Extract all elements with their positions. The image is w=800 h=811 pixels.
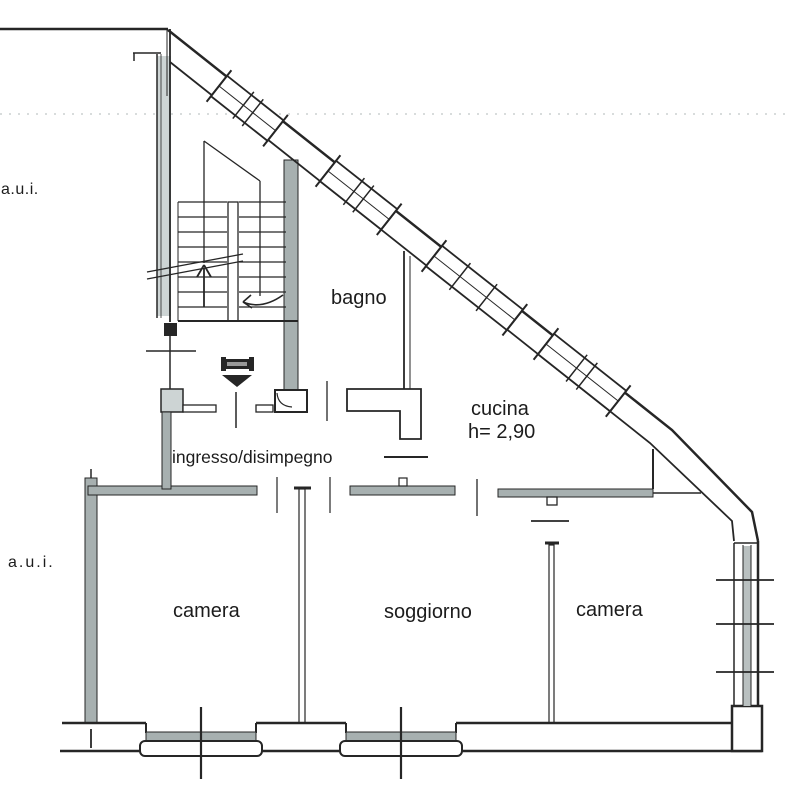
diagonal-wall-inner [170,62,734,541]
room-label-camera-right: camera [576,599,644,621]
floor-plan-drawing: a.u.i. a.u.i. bagno cucina h= 2,90 ingre… [0,0,800,811]
room-label-bagno: bagno [331,287,387,309]
left-wall [85,478,97,723]
right-window-wall [716,541,774,706]
bottom-wall [60,706,762,779]
room-label-camera-left: camera [173,600,241,622]
window-diagonal-3 [422,240,528,335]
wall-soggiorno-camera [549,545,554,723]
corner-block [732,706,762,751]
wall-end-block [164,323,177,336]
entry-door-icon [221,357,254,387]
hall-wall-segment-2 [350,486,455,495]
room-label-soggiorno: soggiorno [384,601,472,623]
hall-left-wall [162,412,171,489]
window-soggiorno [340,707,462,779]
up-arrow-icon [197,265,211,307]
wall-camera-soggiorno [299,489,305,723]
annotation-aui-top: a.u.i. [1,181,39,198]
bagno-left-wall [284,160,298,390]
cucina-corner-wall [347,389,421,439]
entry-pillar-left [161,389,183,412]
cucina-bottom-wall [498,489,653,497]
hall-wall-segment-1 [88,486,257,495]
room-label-ingresso: ingresso/disimpegno [172,447,333,467]
room-label-cucina-height: h= 2,90 [468,421,535,443]
annotation-aui-bottom: a.u.i. [8,554,55,571]
window-diagonal-1 [207,70,288,146]
floor-plan-page: a.u.i. a.u.i. bagno cucina h= 2,90 ingre… [0,0,800,811]
exterior-walls [0,29,758,541]
diagonal-windows [207,70,631,416]
down-arrow-icon [243,295,283,308]
stairwell [133,29,298,389]
window-camera-left [140,707,262,779]
room-label-cucina: cucina [471,398,530,420]
window-diagonal-2 [316,155,402,235]
window-diagonal-4 [534,328,631,416]
